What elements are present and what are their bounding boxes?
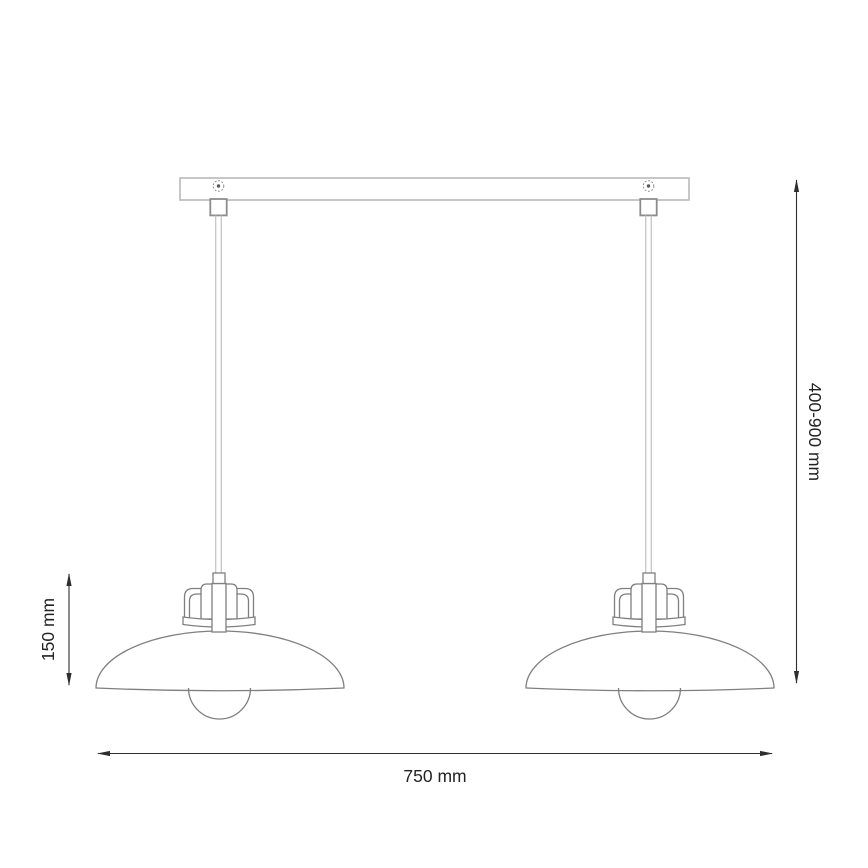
mount-bar xyxy=(180,178,689,200)
yoke-handle-left xyxy=(185,589,202,619)
yoke-handle-right xyxy=(237,589,254,619)
arrow-left-icon xyxy=(97,751,110,756)
screw-center xyxy=(647,184,650,187)
cord-connector-right xyxy=(640,199,656,215)
arrow-down-icon xyxy=(794,671,799,684)
shade-height-label: 150 mm xyxy=(38,598,58,661)
arrow-down-icon xyxy=(66,673,71,686)
pendant-lamp-left xyxy=(96,573,344,719)
dimension-suspension-height: 400-900 mm xyxy=(794,179,825,684)
arrow-up-icon xyxy=(794,179,799,192)
shade-dome xyxy=(96,631,344,688)
ceiling-mount xyxy=(180,178,689,215)
screw-center xyxy=(217,184,220,187)
suspension-height-label: 400-900 mm xyxy=(805,383,825,481)
dimension-width: 750 mm xyxy=(97,751,773,786)
bulb xyxy=(189,688,251,719)
drawing-canvas: 750 mm 400-900 mm 150 mm xyxy=(0,0,868,868)
pendant-lamp-right xyxy=(526,573,774,719)
cord-grip xyxy=(213,573,225,584)
cord-connector-left xyxy=(210,199,226,215)
width-dimension-label: 750 mm xyxy=(403,766,466,786)
arrow-right-icon xyxy=(760,751,773,756)
dimension-shade-height: 150 mm xyxy=(38,573,72,686)
pendant-lamp-technical-drawing: 750 mm 400-900 mm 150 mm xyxy=(0,0,868,868)
arrow-up-icon xyxy=(66,573,71,586)
stem-tube xyxy=(212,584,226,633)
suspension-cords xyxy=(216,216,652,576)
